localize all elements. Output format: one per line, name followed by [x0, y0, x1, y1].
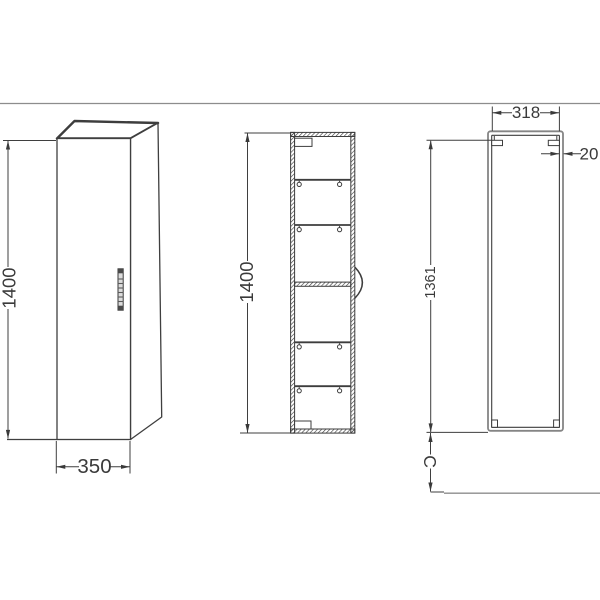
svg-text:1400: 1400 — [0, 267, 20, 308]
svg-text:C: C — [420, 455, 440, 468]
svg-text:318: 318 — [512, 103, 540, 122]
svg-text:20: 20 — [580, 145, 599, 164]
svg-text:1361: 1361 — [423, 266, 439, 298]
svg-text:350: 350 — [77, 455, 111, 478]
svg-text:1400: 1400 — [236, 261, 257, 302]
